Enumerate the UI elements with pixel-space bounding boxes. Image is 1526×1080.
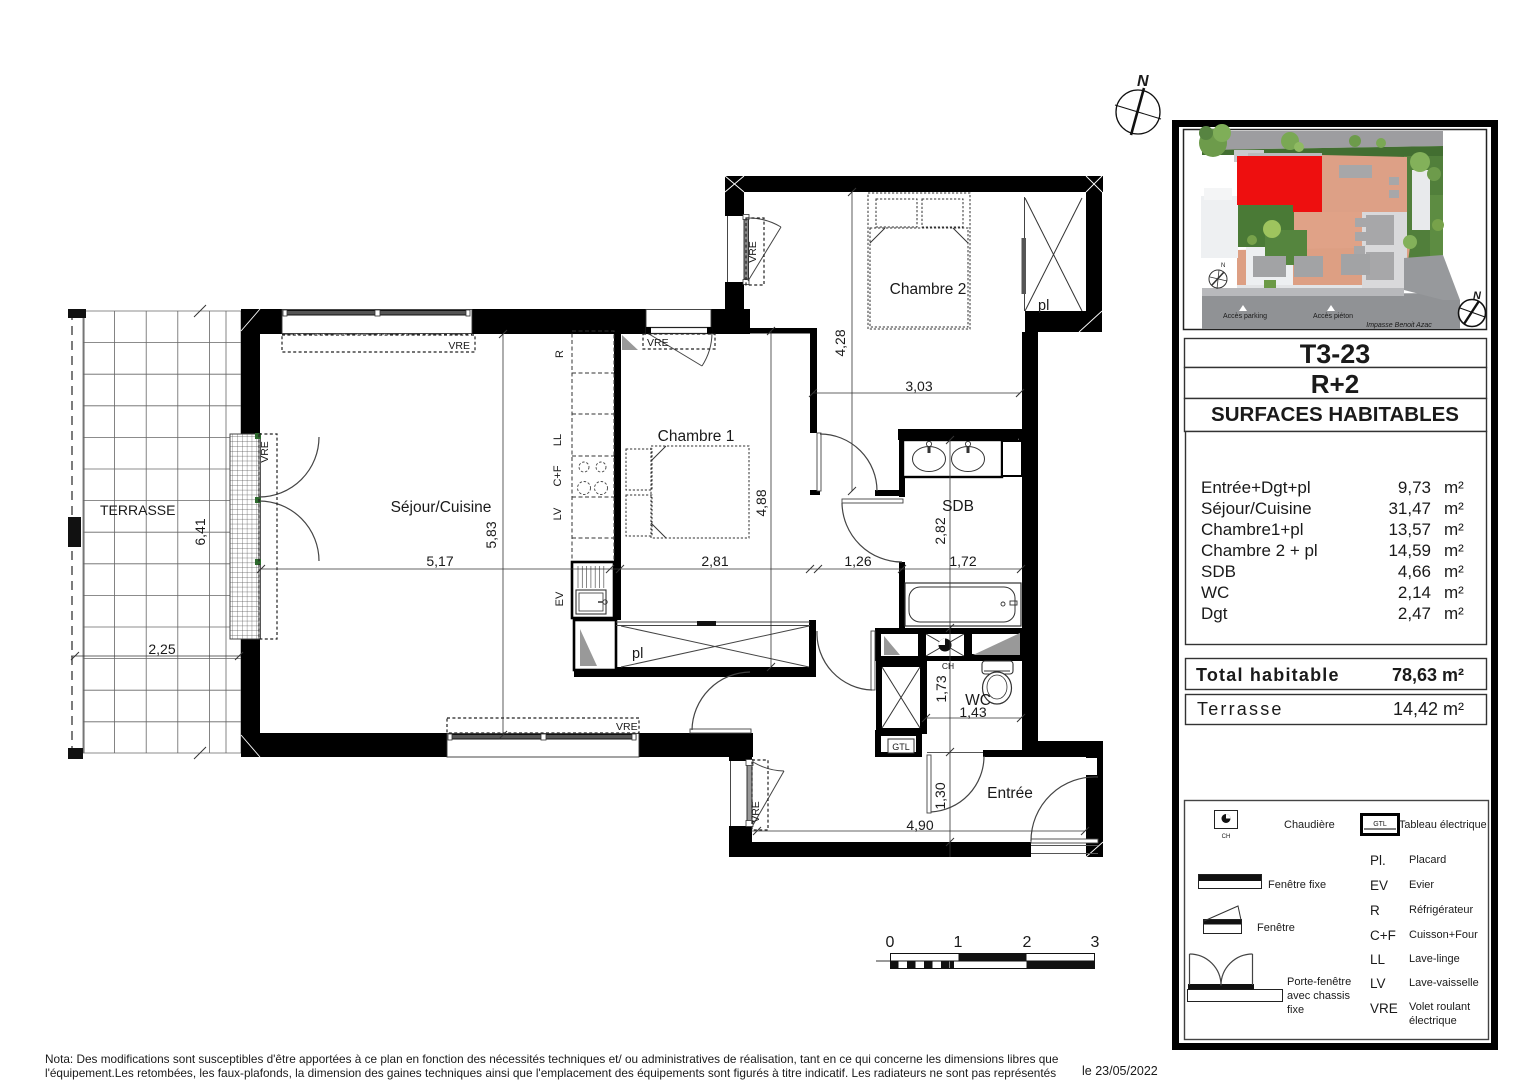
svg-text:N: N: [1473, 290, 1482, 302]
svg-text:1: 1: [954, 934, 963, 951]
svg-text:Accès parking: Accès parking: [1223, 313, 1267, 320]
svg-text:4,88: 4,88: [753, 489, 769, 516]
svg-text:0: 0: [886, 934, 895, 951]
svg-text:Chambre 1: Chambre 1: [658, 428, 735, 445]
svg-text:5,83: 5,83: [483, 521, 499, 548]
svg-text:Tableau électrique: Tableau électrique: [1399, 819, 1487, 831]
svg-text:Réfrigérateur: Réfrigérateur: [1409, 904, 1474, 916]
svg-text:3,03: 3,03: [905, 378, 932, 394]
svg-text:Séjour/Cuisine: Séjour/Cuisine: [1201, 499, 1312, 518]
svg-text:Chambre 2: Chambre 2: [890, 281, 967, 298]
svg-text:Evier: Evier: [1409, 879, 1434, 891]
svg-text:m²: m²: [1444, 499, 1464, 518]
svg-text:SDB: SDB: [942, 498, 974, 515]
svg-text:T3-23: T3-23: [1300, 339, 1371, 369]
svg-text:Cuisson+Four: Cuisson+Four: [1409, 929, 1478, 941]
svg-text:Dgt: Dgt: [1201, 604, 1228, 623]
svg-text:VRE: VRE: [448, 340, 470, 352]
svg-text:LV: LV: [1370, 976, 1386, 991]
svg-text:78,63 m²: 78,63 m²: [1392, 665, 1464, 685]
svg-text:4,66: 4,66: [1398, 562, 1431, 581]
svg-text:Chaudière: Chaudière: [1284, 819, 1335, 831]
svg-text:2,82: 2,82: [932, 517, 948, 544]
svg-text:m²: m²: [1444, 478, 1464, 497]
svg-text:2: 2: [1023, 934, 1032, 951]
svg-text:m²: m²: [1444, 604, 1464, 623]
svg-text:2,14: 2,14: [1398, 583, 1431, 602]
svg-text:LV: LV: [552, 507, 564, 520]
svg-text:14,42 m²: 14,42 m²: [1393, 699, 1464, 719]
svg-text:R: R: [554, 350, 566, 358]
svg-text:C+F: C+F: [552, 465, 564, 486]
svg-text:VRE: VRE: [616, 721, 638, 733]
svg-text:WC: WC: [1201, 583, 1229, 602]
svg-text:pl: pl: [1038, 298, 1049, 314]
svg-text:31,47: 31,47: [1388, 499, 1431, 518]
svg-text:LL: LL: [1370, 952, 1386, 967]
svg-text:GTL: GTL: [892, 742, 910, 752]
svg-text:14,59: 14,59: [1388, 541, 1431, 560]
svg-text:Porte-fenêtre: Porte-fenêtre: [1287, 976, 1351, 988]
svg-text:4,28: 4,28: [832, 329, 848, 356]
svg-text:5,17: 5,17: [426, 553, 453, 569]
svg-text:4,90: 4,90: [906, 817, 933, 833]
svg-text:Volet roulant: Volet roulant: [1409, 1001, 1470, 1013]
svg-text:R: R: [1370, 903, 1380, 918]
svg-text:m²: m²: [1444, 583, 1464, 602]
svg-text:m²: m²: [1444, 541, 1464, 560]
svg-text:9,73: 9,73: [1398, 478, 1431, 497]
svg-text:1,72: 1,72: [949, 553, 976, 569]
svg-text:CH: CH: [1222, 834, 1231, 840]
svg-text:électrique: électrique: [1409, 1015, 1457, 1027]
svg-text:Pl.: Pl.: [1370, 853, 1386, 868]
svg-text:EV: EV: [554, 591, 566, 606]
svg-text:l'équipement.Les retombées, le: l'équipement.Les retombées, les faux-pla…: [45, 1066, 1056, 1080]
svg-text:Séjour/Cuisine: Séjour/Cuisine: [391, 499, 492, 516]
svg-text:13,57: 13,57: [1388, 520, 1431, 539]
svg-text:GTL: GTL: [1373, 821, 1387, 828]
svg-text:2,47: 2,47: [1398, 604, 1431, 623]
svg-text:Impasse Benoit Azac: Impasse Benoit Azac: [1366, 322, 1432, 329]
svg-text:Entrée+Dgt+pl: Entrée+Dgt+pl: [1201, 478, 1311, 497]
svg-text:SURFACES HABITABLES: SURFACES HABITABLES: [1211, 403, 1459, 426]
svg-text:6,41: 6,41: [192, 518, 208, 545]
svg-text:VRE: VRE: [747, 241, 759, 263]
svg-text:Fenêtre: Fenêtre: [1257, 922, 1295, 934]
svg-text:TERRASSE: TERRASSE: [100, 502, 175, 518]
svg-text:CH: CH: [942, 661, 954, 671]
svg-text:Lave-linge: Lave-linge: [1409, 953, 1460, 965]
svg-text:3: 3: [1091, 934, 1100, 951]
svg-text:VRE: VRE: [750, 801, 762, 823]
svg-text:m²: m²: [1444, 520, 1464, 539]
svg-text:le 23/05/2022: le 23/05/2022: [1082, 1064, 1158, 1078]
svg-text:C+F: C+F: [1370, 928, 1396, 943]
svg-text:VRE: VRE: [1370, 1001, 1398, 1016]
svg-text:fixe: fixe: [1287, 1004, 1304, 1016]
svg-text:Total habitable: Total habitable: [1196, 665, 1340, 685]
svg-text:1,30: 1,30: [932, 782, 948, 809]
svg-text:Chambre1+pl: Chambre1+pl: [1201, 520, 1304, 539]
svg-text:Terrasse: Terrasse: [1197, 699, 1284, 719]
svg-text:Nota: Des modifications sont s: Nota: Des modifications sont susceptible…: [45, 1052, 1059, 1066]
svg-text:EV: EV: [1370, 878, 1388, 893]
svg-text:Entrée: Entrée: [987, 785, 1033, 802]
svg-text:Lave-vaisselle: Lave-vaisselle: [1409, 977, 1479, 989]
svg-text:VRE: VRE: [647, 337, 669, 349]
svg-text:Accès piéton: Accès piéton: [1313, 313, 1353, 320]
svg-text:Fenêtre fixe: Fenêtre fixe: [1268, 879, 1326, 891]
svg-text:LL: LL: [552, 434, 564, 446]
svg-text:1,73: 1,73: [933, 675, 949, 702]
svg-text:Placard: Placard: [1409, 854, 1446, 866]
svg-text:2,25: 2,25: [148, 641, 175, 657]
svg-text:1,26: 1,26: [844, 553, 871, 569]
svg-text:m²: m²: [1444, 562, 1464, 581]
svg-text:Chambre 2 + pl: Chambre 2 + pl: [1201, 541, 1318, 560]
svg-text:2,81: 2,81: [701, 553, 728, 569]
svg-text:N: N: [1221, 263, 1225, 269]
svg-text:WC: WC: [965, 692, 991, 709]
svg-text:SDB: SDB: [1201, 562, 1236, 581]
svg-text:R+2: R+2: [1311, 369, 1359, 399]
svg-text:N: N: [1137, 73, 1149, 90]
svg-text:avec chassis: avec chassis: [1287, 990, 1350, 1002]
svg-text:pl: pl: [632, 646, 643, 662]
svg-text:VRE: VRE: [259, 441, 271, 463]
